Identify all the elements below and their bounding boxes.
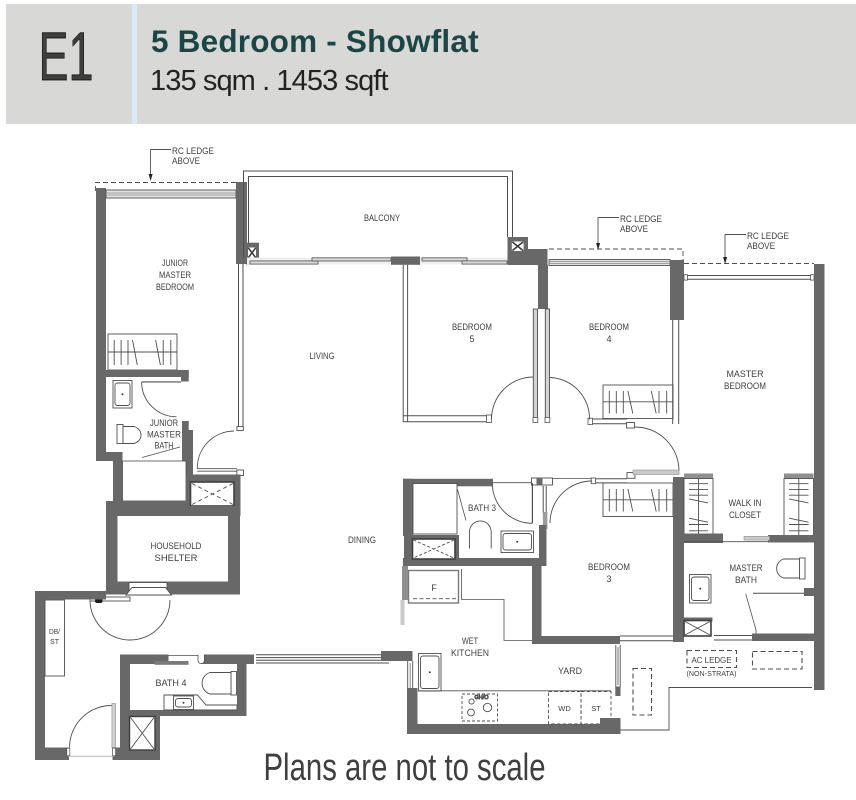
svg-text:Plans are not to scale: Plans are not to scale xyxy=(264,747,546,789)
